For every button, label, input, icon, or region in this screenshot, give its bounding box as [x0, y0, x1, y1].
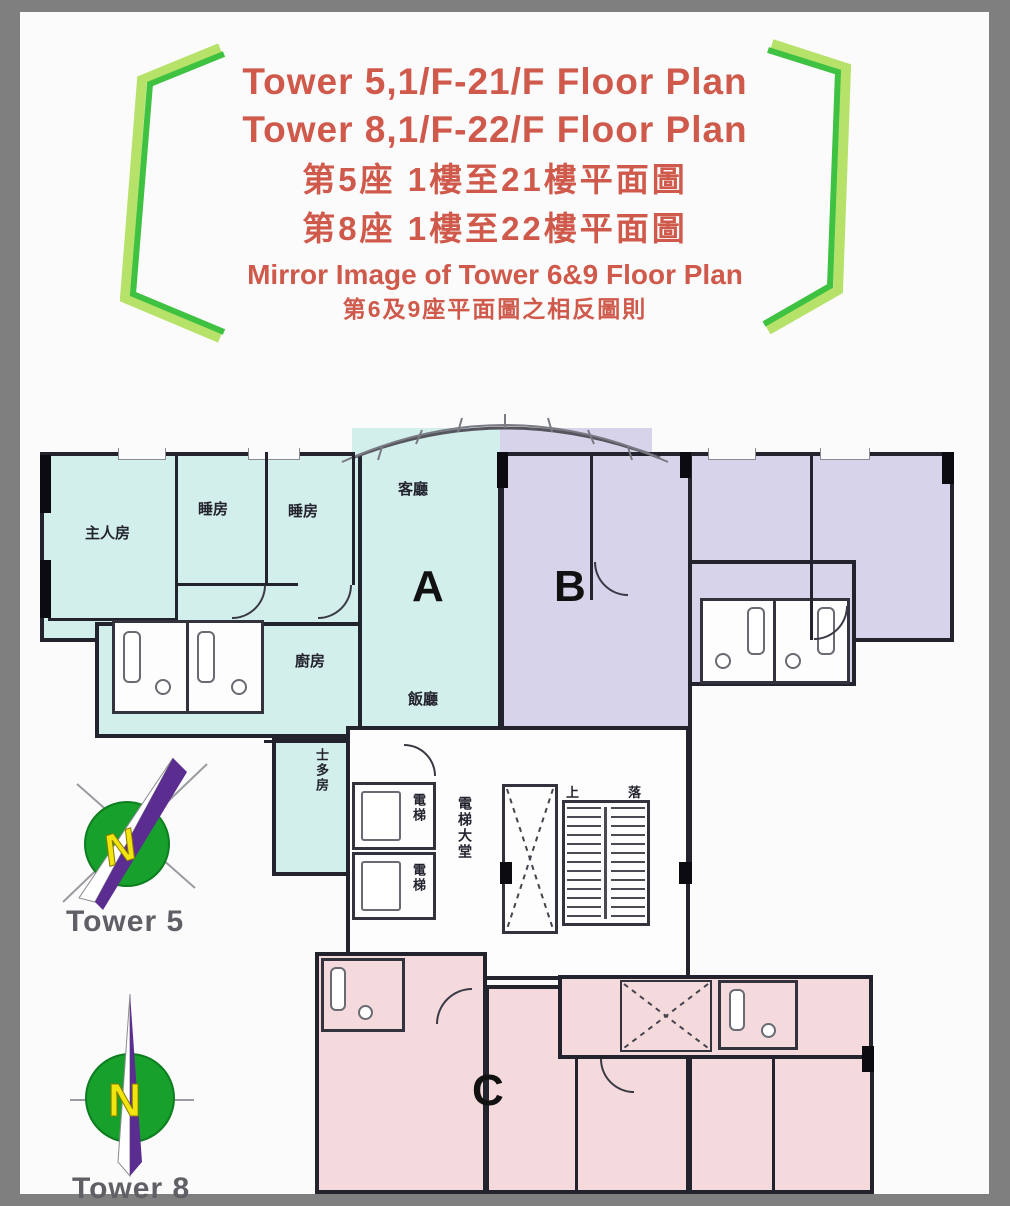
- lift-shaft-x: [505, 787, 555, 931]
- title-line-2: Tower 8,1/F-22/F Floor Plan: [140, 106, 850, 154]
- unit-c-bathroom: [718, 980, 798, 1050]
- wall: [810, 452, 813, 640]
- column: [40, 455, 51, 513]
- unit-b-letter: B: [554, 562, 586, 612]
- lift-1: 電梯: [352, 782, 436, 850]
- window-notch: [118, 448, 166, 460]
- title-block: Tower 5,1/F-21/F Floor Plan Tower 8,1/F-…: [140, 58, 850, 321]
- lift-2: 電梯: [352, 852, 436, 920]
- unit-c-bedroom-block: [688, 1055, 874, 1194]
- unit-a-letter: A: [412, 562, 444, 612]
- column: [942, 452, 954, 484]
- wall: [772, 1059, 775, 1194]
- room-label-master-bedroom: 主人房: [85, 522, 130, 543]
- unit-c-top-band: [558, 975, 873, 1059]
- column: [40, 560, 51, 618]
- lift-1-label: 電梯: [409, 793, 428, 823]
- room-label-living-room: 客廳: [398, 478, 428, 499]
- unit-a-bedroom-wing: [40, 452, 362, 642]
- tower5-compass-icon: N: [55, 752, 215, 917]
- wall: [175, 452, 178, 624]
- column: [680, 452, 691, 478]
- window-notch: [708, 448, 756, 460]
- room-label-kitchen: 廚房: [295, 650, 325, 671]
- title-line-3: 第5座 1樓至21樓平面圖: [140, 154, 850, 203]
- title-line-6: 第6及9座平面圖之相反圖則: [140, 291, 850, 321]
- tower8-label: Tower 8: [72, 1172, 190, 1206]
- wall: [352, 452, 355, 585]
- lift-2-label: 電梯: [409, 863, 428, 893]
- unit-c-left-bathroom: [321, 958, 405, 1032]
- window-notch: [248, 448, 300, 460]
- tower8-north-letter: N: [108, 1074, 141, 1126]
- column: [500, 862, 512, 884]
- wall: [265, 452, 268, 585]
- unit-a-store-corridor: [272, 736, 350, 876]
- room-label-bedroom-2: 睡房: [288, 500, 318, 521]
- column: [862, 1046, 874, 1072]
- lift-lobby-label: 電梯大堂: [455, 796, 475, 926]
- stairs-up-label: 上: [566, 782, 579, 801]
- wall: [575, 1059, 578, 1194]
- unit-c-letter: C: [472, 1066, 504, 1116]
- unit-c-xroom: [620, 980, 712, 1052]
- tower5-label: Tower 5: [66, 905, 184, 939]
- column: [679, 862, 692, 884]
- title-line-5: Mirror Image of Tower 6&9 Floor Plan: [140, 252, 850, 291]
- title-line-1: Tower 5,1/F-21/F Floor Plan: [140, 58, 850, 106]
- room-label-bedroom-1: 睡房: [198, 498, 228, 519]
- tower8-compass-icon: N: [68, 992, 198, 1184]
- scanned-floorplan-page: Tower 5,1/F-21/F Floor Plan Tower 8,1/F-…: [0, 0, 1010, 1194]
- room-label-store-room: 士多房: [312, 748, 331, 828]
- title-line-4: 第8座 1樓至22樓平面圖: [140, 203, 850, 252]
- stairs-down-label: 落: [628, 782, 641, 801]
- unit-a-bathrooms: [112, 620, 264, 714]
- column: [497, 452, 508, 488]
- lift-shaft: [502, 784, 558, 934]
- wall: [590, 452, 593, 600]
- window-notch: [820, 448, 870, 460]
- staircase: [562, 800, 650, 926]
- room-label-dining-room: 飯廳: [408, 688, 438, 709]
